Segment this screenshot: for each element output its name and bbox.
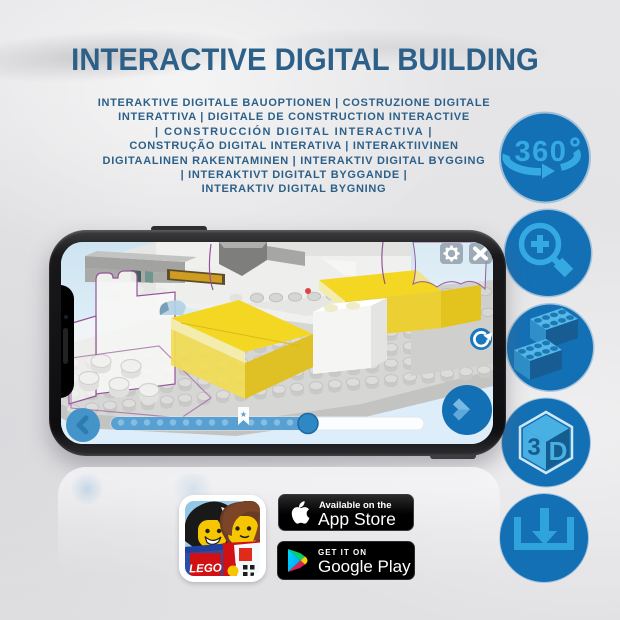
svg-text:360: 360 [515, 136, 568, 168]
svg-text:D: D [549, 436, 568, 466]
svg-text:LEGO: LEGO [189, 562, 222, 575]
svg-text:Google Play: Google Play [318, 557, 411, 576]
svg-text:3: 3 [527, 434, 540, 461]
svg-text:★: ★ [240, 410, 247, 419]
svg-text:GET IT ON: GET IT ON [318, 548, 367, 557]
svg-text:App Store: App Store [318, 509, 396, 529]
